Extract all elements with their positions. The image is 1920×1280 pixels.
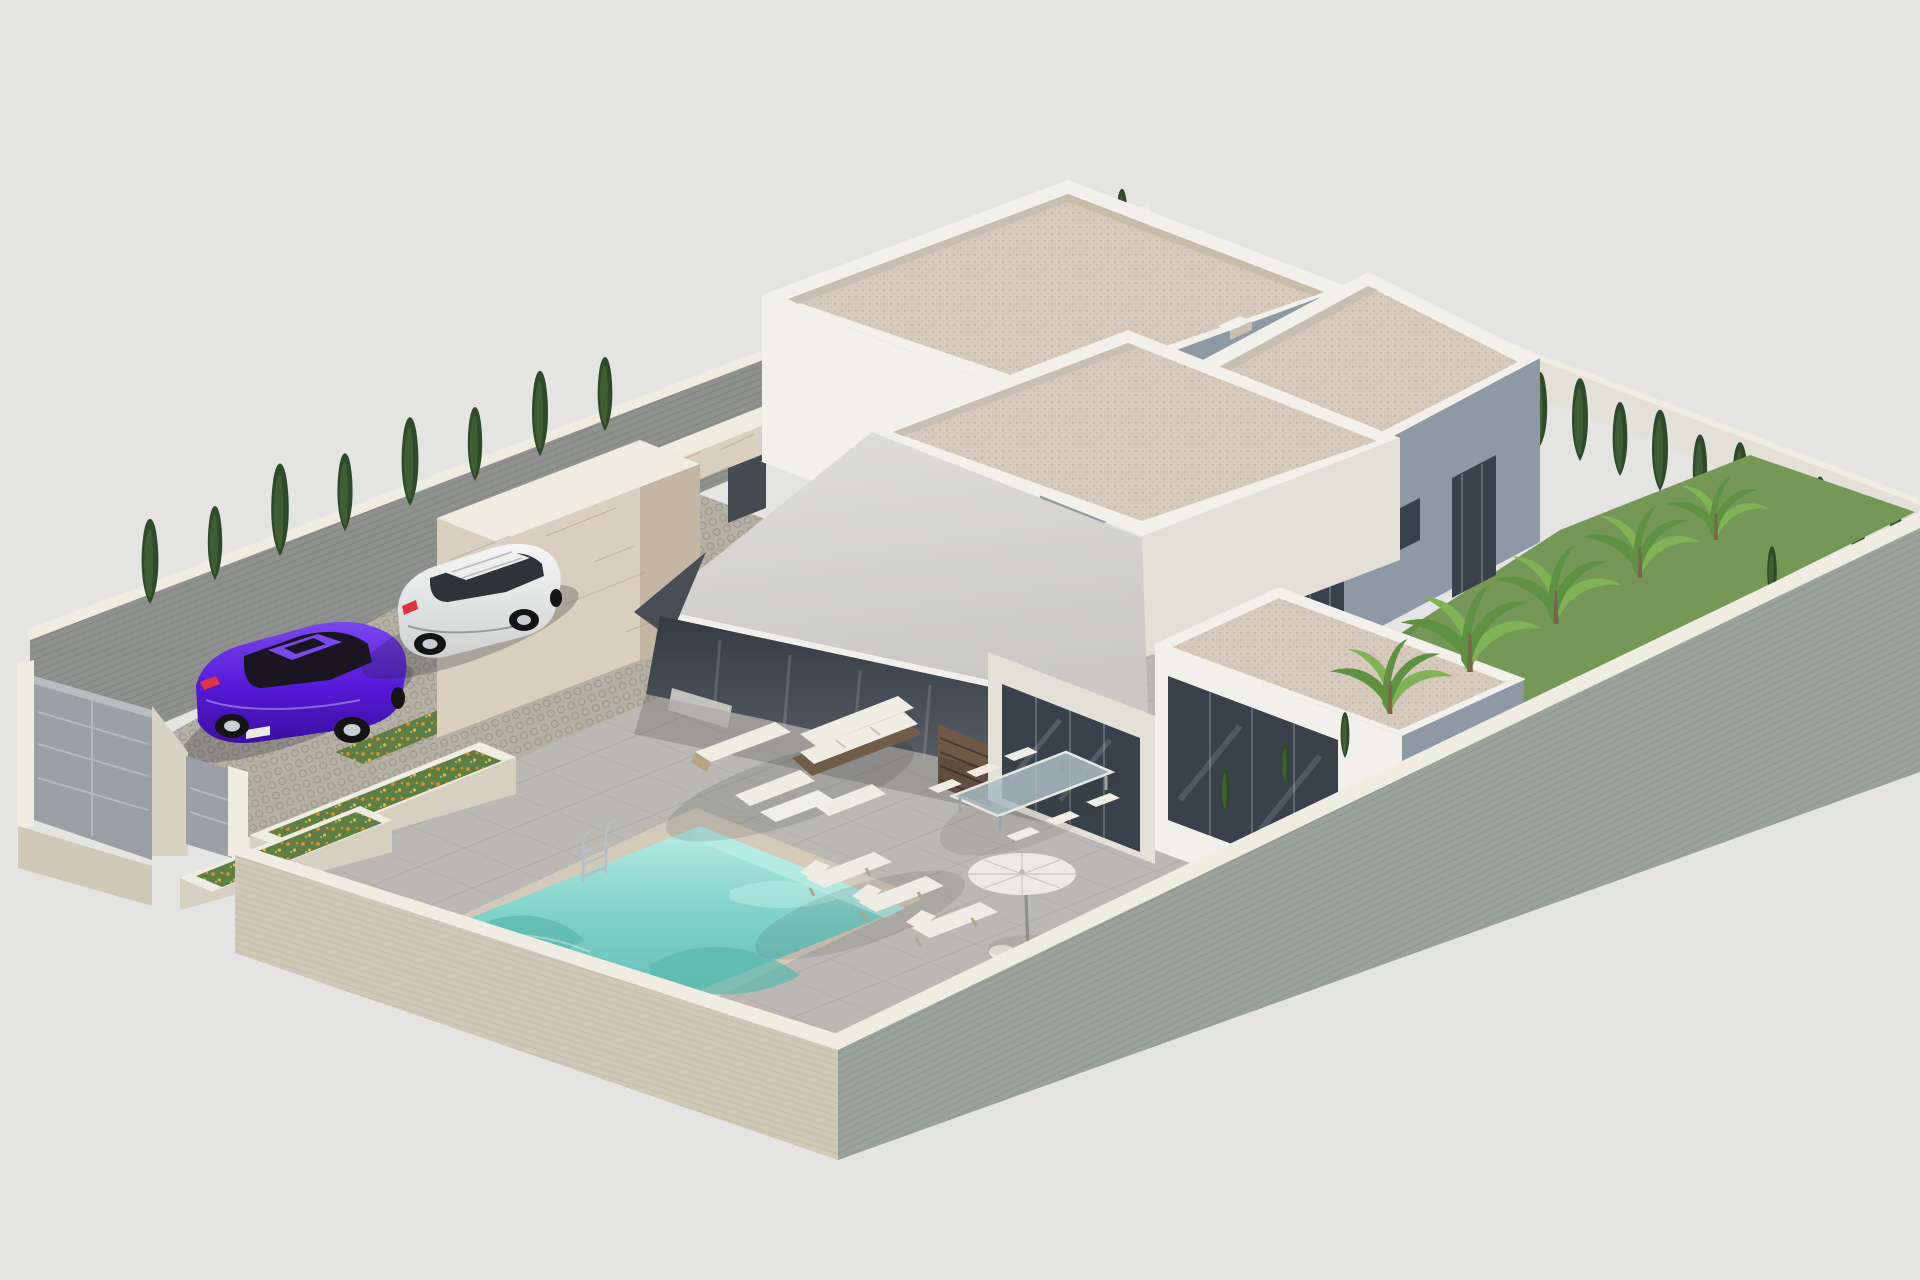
pedestrian-gate xyxy=(186,756,232,858)
parasol-tip xyxy=(1019,869,1024,874)
car-wheel xyxy=(391,687,405,709)
villa-render-svg: Isometric 3D architectural rendering of … xyxy=(0,0,1920,1280)
window-door xyxy=(1452,455,1496,598)
render-viewport: Isometric 3D architectural rendering of … xyxy=(0,0,1920,1280)
car-wheel-rim xyxy=(224,721,240,732)
car-wheel xyxy=(550,589,562,607)
gate-post xyxy=(18,660,34,830)
car-wheel-rim xyxy=(517,615,531,625)
car-wheel-rim xyxy=(344,724,361,736)
car-wheel-rim xyxy=(423,639,438,649)
